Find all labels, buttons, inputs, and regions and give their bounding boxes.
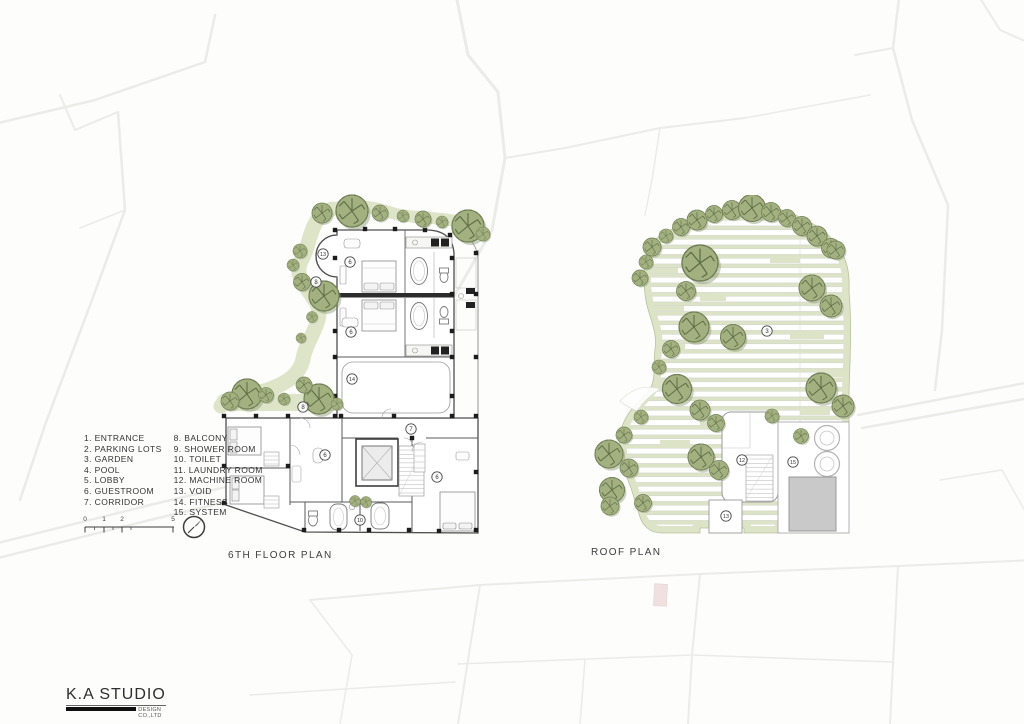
scale-label: 0 <box>83 516 87 523</box>
legend-column-2: 8. BALCONY9. SHOWER ROOM10. TOILET11. LA… <box>174 433 263 518</box>
legend-item: 3. GARDEN <box>84 454 162 465</box>
legend-item: 14. FITNESS <box>174 497 263 508</box>
drawing-sheet: 1368614876610 <box>0 0 1024 724</box>
scale-label: 2 <box>120 516 124 523</box>
scale-bar: 0125 <box>83 512 183 536</box>
legend-item: 10. TOILET <box>174 454 263 465</box>
legend-item: 6. GUESTROOM <box>84 486 162 497</box>
roof-plan-title: ROOF PLAN <box>591 547 661 558</box>
legend-item: 4. POOL <box>84 465 162 476</box>
legend-item: 2. PARKING LOTS <box>84 444 162 455</box>
room-number-text: 14 <box>349 377 355 383</box>
legend-item: 11. LAUNDRY ROOM <box>174 465 263 476</box>
room-number-text: 10 <box>357 518 363 524</box>
logo-bar <box>66 707 136 711</box>
legend-item: 9. SHOWER ROOM <box>174 444 263 455</box>
scale-label: 1 <box>102 516 106 523</box>
room-number-text: 15 <box>790 460 796 466</box>
legend-column-1: 1. ENTRANCE2. PARKING LOTS3. GARDEN4. PO… <box>84 433 162 518</box>
scale-label: 5 <box>171 516 175 523</box>
equipment-pad <box>789 477 836 531</box>
room-number-text: 13 <box>320 252 326 258</box>
north-arrow-icon <box>181 514 207 540</box>
logo-subtitle: DESIGN CO.,LTD <box>138 707 184 719</box>
legend-item: 7. CORRIDOR <box>84 497 162 508</box>
site-building-pink <box>653 584 667 607</box>
studio-logo: K.A STUDIO DESIGN CO.,LTD <box>66 686 184 719</box>
water-tank <box>815 452 840 477</box>
water-tank <box>815 426 840 451</box>
room-number-text: 12 <box>739 458 745 464</box>
floor6-plan-title: 6TH FLOOR PLAN <box>228 550 333 561</box>
room-number-text: 13 <box>723 514 729 520</box>
legend-item: 13. VOID <box>174 486 263 497</box>
legend-item: 12. MACHINE ROOM <box>174 475 263 486</box>
roof-plan-drawing: 3121513 <box>575 195 875 555</box>
legend-item: 5. LOBBY <box>84 475 162 486</box>
legend: 1. ENTRANCE2. PARKING LOTS3. GARDEN4. PO… <box>84 433 263 518</box>
legend-item: 8. BALCONY <box>174 433 263 444</box>
legend-item: 1. ENTRANCE <box>84 433 162 444</box>
logo-name: K.A STUDIO <box>66 686 166 706</box>
